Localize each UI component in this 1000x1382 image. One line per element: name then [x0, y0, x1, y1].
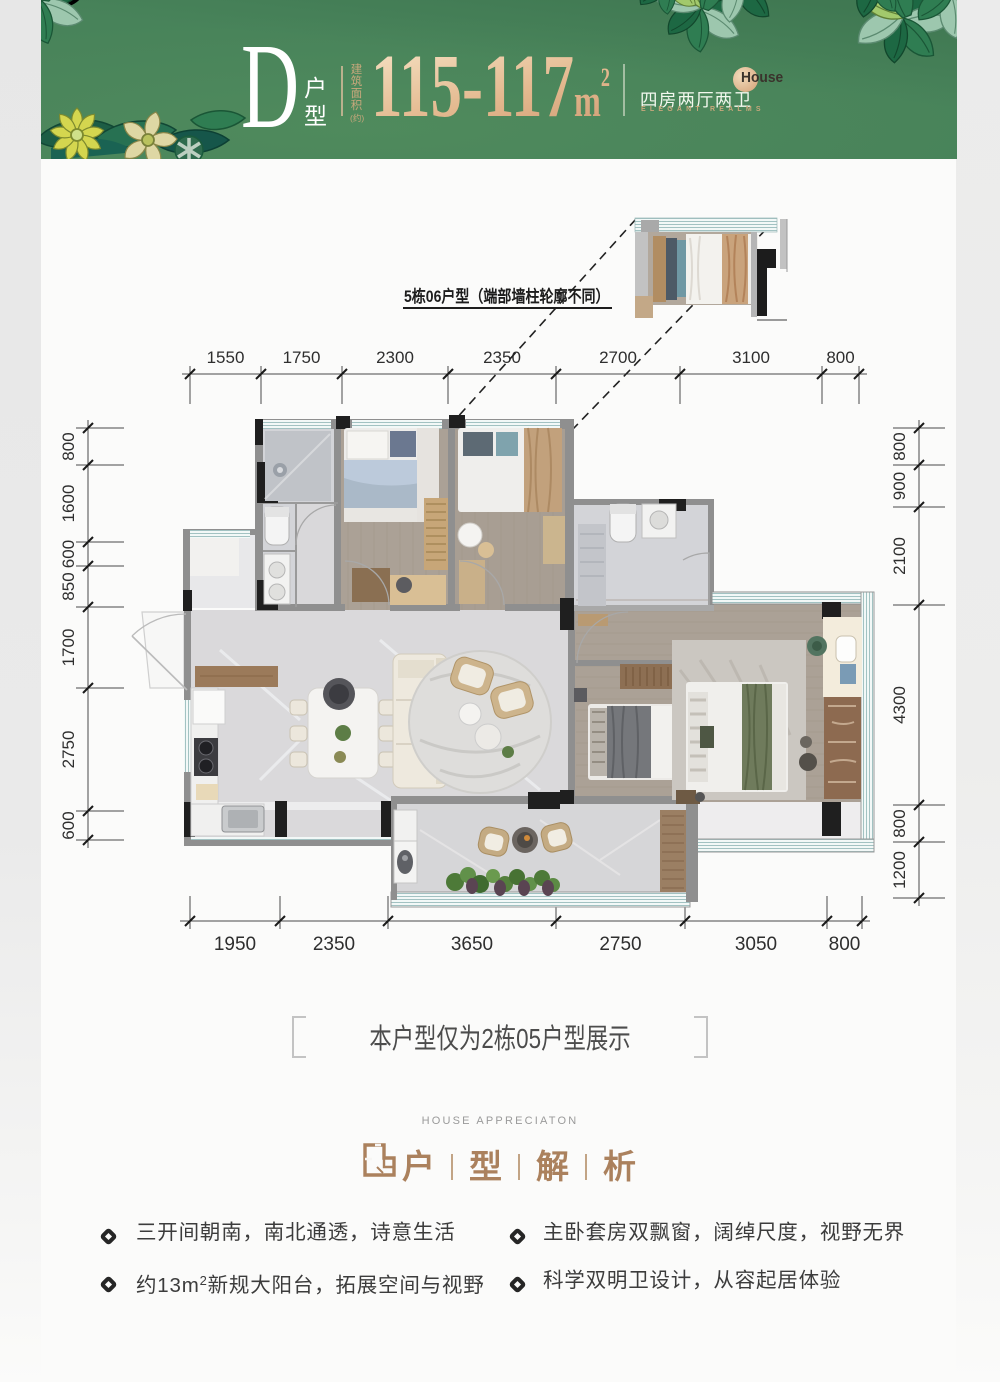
svg-text:800: 800	[829, 934, 861, 955]
svg-text:2100: 2100	[890, 537, 909, 575]
svg-text:600: 600	[59, 811, 78, 839]
svg-text:5栋06户型（端部墙柱轮廓不同）: 5栋06户型（端部墙柱轮廓不同）	[404, 287, 610, 306]
svg-text:800: 800	[59, 432, 78, 460]
svg-text:3650: 3650	[451, 934, 493, 955]
svg-text:900: 900	[890, 472, 909, 500]
svg-text:2750: 2750	[59, 731, 78, 769]
svg-text:1550: 1550	[207, 348, 245, 367]
svg-text:4300: 4300	[890, 686, 909, 724]
svg-text:800: 800	[826, 348, 854, 367]
svg-text:800: 800	[890, 809, 909, 837]
svg-text:1200: 1200	[890, 851, 909, 889]
svg-text:2350: 2350	[313, 934, 355, 955]
svg-text:2750: 2750	[599, 934, 641, 955]
svg-text:3100: 3100	[732, 348, 770, 367]
svg-text:1750: 1750	[283, 348, 321, 367]
svg-text:600: 600	[59, 540, 78, 568]
svg-text:2350: 2350	[483, 348, 521, 367]
svg-text:1700: 1700	[59, 629, 78, 667]
svg-text:850: 850	[59, 572, 78, 600]
svg-text:3050: 3050	[735, 934, 777, 955]
svg-text:1600: 1600	[59, 485, 78, 523]
svg-text:1950: 1950	[214, 934, 256, 955]
svg-text:800: 800	[890, 432, 909, 460]
svg-text:2700: 2700	[599, 348, 637, 367]
svg-text:2300: 2300	[376, 348, 414, 367]
